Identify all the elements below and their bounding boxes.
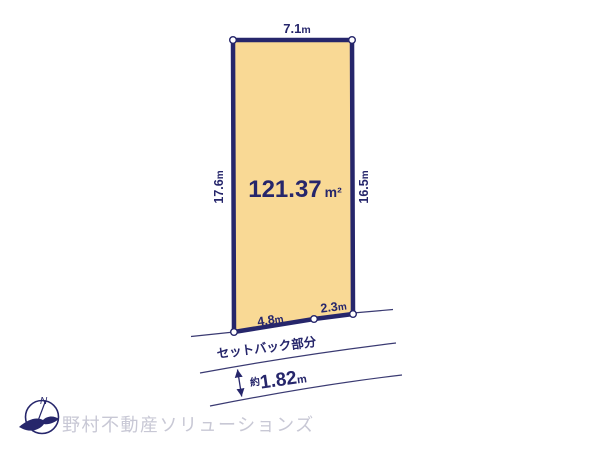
corner-marker [230, 37, 237, 44]
setback-zone: セットバック部分 約1.82m [200, 334, 402, 406]
corner-marker [350, 311, 357, 318]
watermark-text: 野村不動産ソリューションズ [62, 415, 315, 435]
corner-marker [349, 37, 356, 44]
dim-top-label: 7.1m [283, 21, 310, 36]
setback-width-arrow [238, 370, 242, 397]
land-plot-diagram: 7.1m 17.6m 16.5m 121.37m² 4.8m 2.3m セットバ… [0, 0, 600, 450]
dim-left-label: 17.6m [212, 170, 226, 203]
road-boundary-line-left [191, 332, 234, 337]
compass-north-label: N [40, 396, 48, 407]
diagram-svg: 7.1m 17.6m 16.5m 121.37m² 4.8m 2.3m セットバ… [0, 0, 600, 450]
corner-marker [231, 329, 238, 336]
dim-right-label: 16.5m [357, 170, 371, 203]
road-boundary-line-right [353, 310, 393, 314]
setback-label: セットバック部分 [216, 334, 318, 361]
setback-width-label: 約1.82m [249, 366, 308, 395]
compass-icon: N [19, 396, 59, 434]
corner-marker [311, 316, 318, 323]
